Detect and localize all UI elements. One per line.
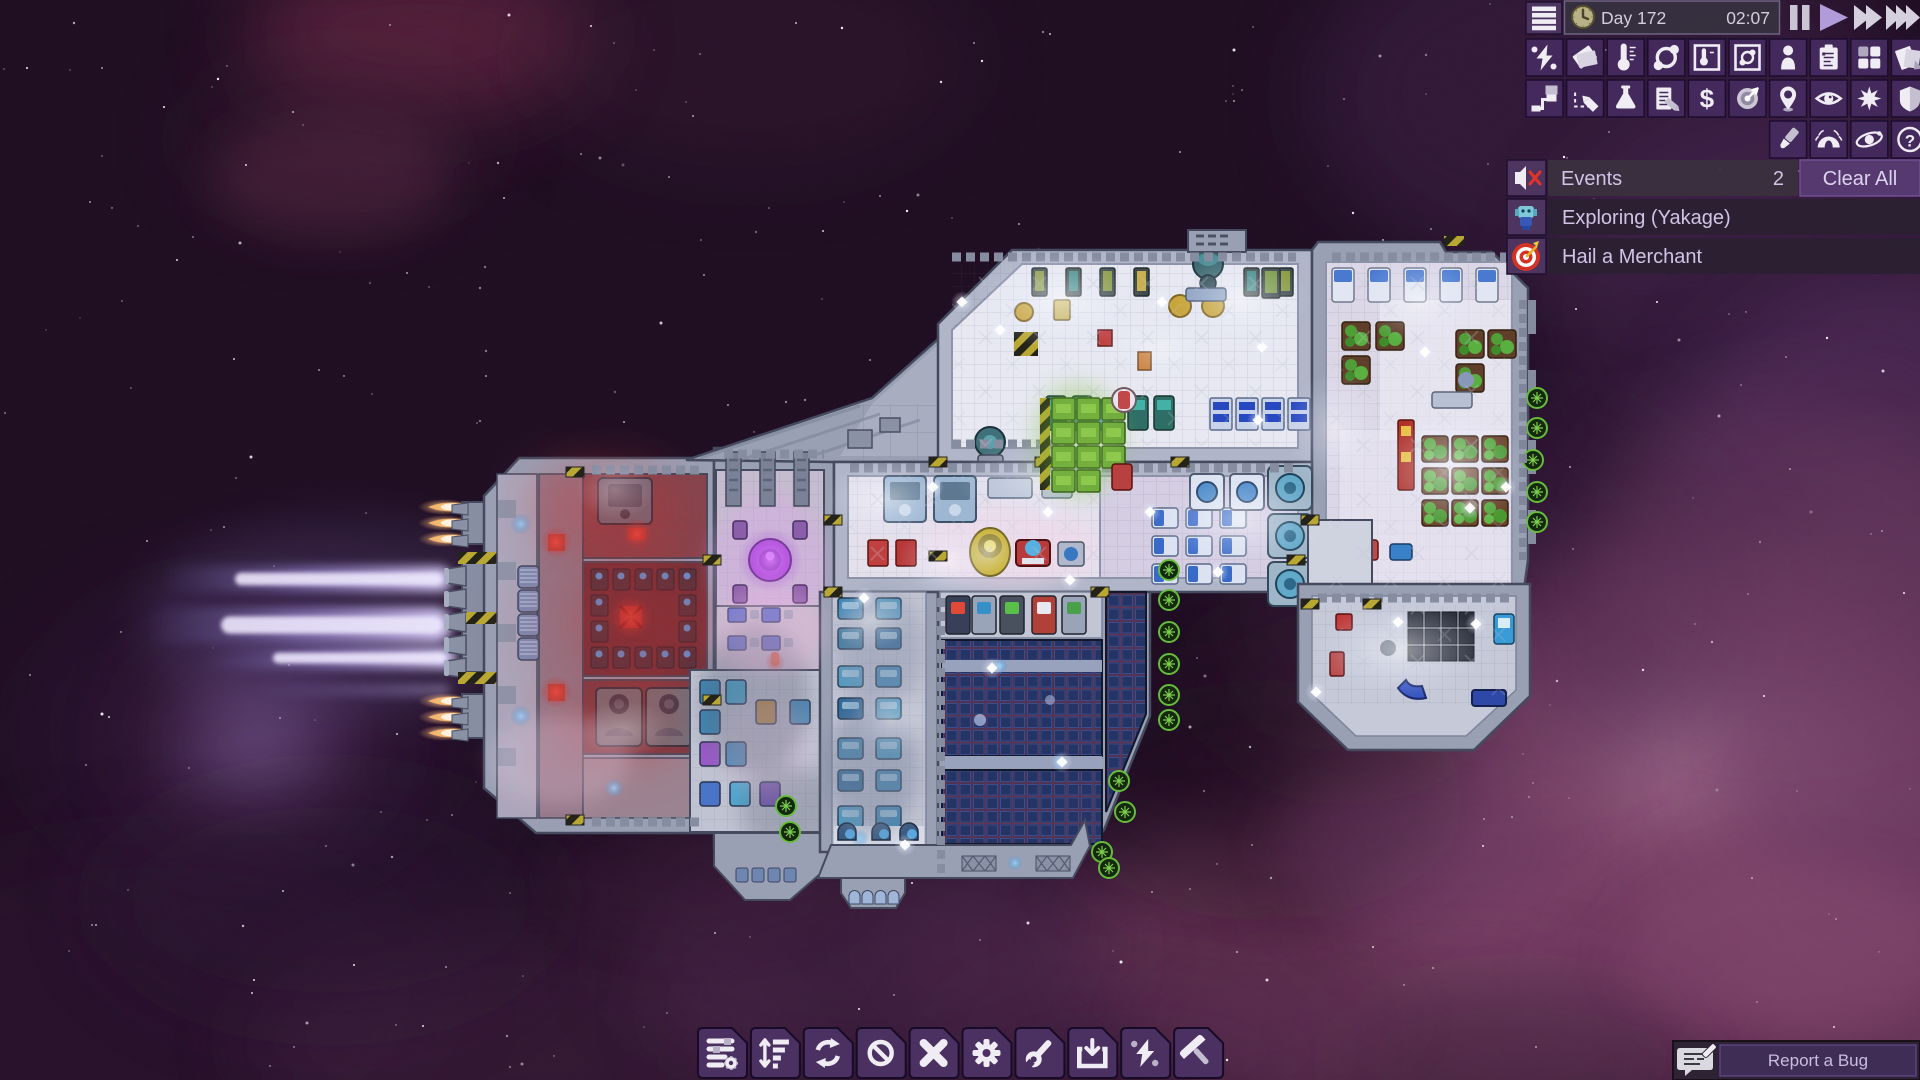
svg-text:Events: Events (1561, 168, 1622, 190)
svg-text:Exploring (Yakage): Exploring (Yakage) (1562, 207, 1731, 229)
svg-text:Hail a Merchant: Hail a Merchant (1562, 246, 1703, 268)
svg-text:?: ? (1905, 132, 1915, 151)
svg-text:2: 2 (1773, 168, 1784, 190)
svg-text:Report a Bug: Report a Bug (1768, 1051, 1868, 1070)
svg-text:02:07: 02:07 (1726, 8, 1770, 28)
svg-text:Day 172: Day 172 (1601, 8, 1666, 28)
svg-text:Clear All: Clear All (1823, 168, 1897, 190)
svg-text:$: $ (1700, 84, 1715, 114)
